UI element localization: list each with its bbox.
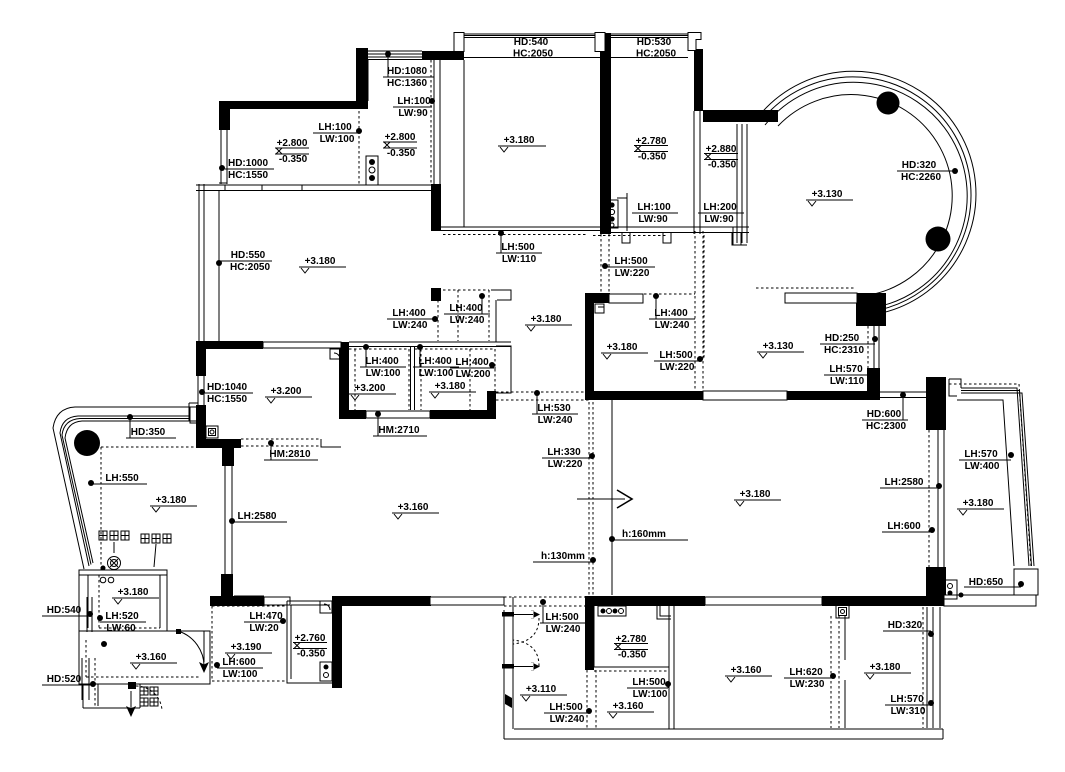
svg-text:LH:600: LH:600 (887, 521, 921, 532)
svg-text:HD:530: HD:530 (637, 37, 672, 48)
svg-text:LH:400: LH:400 (455, 357, 489, 368)
svg-text:HD:320: HD:320 (902, 160, 937, 171)
svg-text:LW:60: LW:60 (106, 623, 136, 634)
svg-text:LW:220: LW:220 (660, 362, 695, 373)
svg-text:-0.350: -0.350 (708, 160, 737, 171)
svg-text:LH:520: LH:520 (105, 611, 139, 622)
svg-text:LH:500: LH:500 (659, 350, 693, 361)
svg-text:-0.350: -0.350 (618, 650, 647, 661)
svg-text:HM:2810: HM:2810 (269, 449, 311, 460)
svg-text:LH:400: LH:400 (654, 308, 688, 319)
svg-text:LW:100: LW:100 (223, 669, 258, 680)
svg-text:HC:1550: HC:1550 (228, 170, 268, 181)
svg-text:-0.350: -0.350 (638, 152, 667, 163)
svg-text:LW:110: LW:110 (502, 254, 537, 265)
svg-text:h:160mm: h:160mm (622, 529, 666, 540)
svg-text:LW:20: LW:20 (249, 623, 279, 634)
svg-text:LH:570: LH:570 (890, 694, 924, 705)
svg-text:HD:1000: HD:1000 (228, 158, 268, 169)
svg-text:LH:400: LH:400 (392, 308, 426, 319)
svg-text:+2.800: +2.800 (385, 132, 416, 143)
svg-text:+3.130: +3.130 (763, 341, 794, 352)
svg-text:+3.160: +3.160 (136, 652, 167, 663)
svg-text:LH:570: LH:570 (829, 364, 863, 375)
svg-text:LW:230: LW:230 (790, 679, 825, 690)
svg-text:HD:320: HD:320 (888, 620, 923, 631)
svg-text:LW:240: LW:240 (450, 315, 485, 326)
svg-text:+3.180: +3.180 (740, 489, 771, 500)
svg-text:LH:500: LH:500 (632, 677, 666, 688)
svg-text:LW:90: LW:90 (704, 214, 734, 225)
svg-text:+3.180: +3.180 (531, 314, 562, 325)
svg-text:+3.200: +3.200 (271, 386, 302, 397)
svg-text:HC:2050: HC:2050 (230, 262, 270, 273)
svg-text:LW:400: LW:400 (965, 461, 1000, 472)
svg-text:HC:2310: HC:2310 (824, 345, 864, 356)
svg-text:HD:600: HD:600 (867, 409, 902, 420)
svg-text:+3.180: +3.180 (305, 256, 336, 267)
svg-text:HD:1080: HD:1080 (387, 66, 427, 77)
svg-text:LW:240: LW:240 (655, 320, 690, 331)
svg-text:-0.350: -0.350 (387, 148, 416, 159)
svg-text:LH:550: LH:550 (105, 473, 139, 484)
svg-text:HD:1040: HD:1040 (207, 382, 247, 393)
svg-text:h:130mm: h:130mm (541, 551, 585, 562)
svg-text:HC:2300: HC:2300 (866, 421, 906, 432)
svg-text:+2.800: +2.800 (277, 138, 308, 149)
svg-text:LH:500: LH:500 (545, 612, 579, 623)
svg-text:LH:570: LH:570 (964, 449, 998, 460)
svg-text:LW:90: LW:90 (398, 108, 428, 119)
svg-text:LW:240: LW:240 (550, 714, 585, 725)
svg-text:HD:540: HD:540 (514, 37, 549, 48)
svg-text:+3.180: +3.180 (156, 495, 187, 506)
svg-text:HD:250: HD:250 (825, 333, 860, 344)
svg-text:LW:200: LW:200 (456, 369, 491, 380)
svg-text:LH:530: LH:530 (537, 403, 571, 414)
svg-text:LH:200: LH:200 (703, 202, 737, 213)
svg-text:HD:540: HD:540 (47, 605, 82, 616)
svg-text:+3.130: +3.130 (812, 189, 843, 200)
svg-text:LW:240: LW:240 (546, 624, 581, 635)
svg-text:LH:400: LH:400 (365, 356, 399, 367)
svg-text:+3.180: +3.180 (870, 662, 901, 673)
svg-text:LH:2580: LH:2580 (238, 511, 277, 522)
svg-text:+3.180: +3.180 (435, 381, 466, 392)
svg-text:LW:240: LW:240 (393, 320, 428, 331)
svg-text:+3.200: +3.200 (355, 383, 386, 394)
svg-text:LH:500: LH:500 (501, 242, 535, 253)
svg-text:LH:100: LH:100 (318, 122, 352, 133)
svg-text:LW:90: LW:90 (638, 214, 668, 225)
svg-text:LH:2580: LH:2580 (885, 477, 924, 488)
svg-text:LW:110: LW:110 (830, 376, 865, 387)
svg-text:LW:100: LW:100 (320, 134, 355, 145)
svg-text:+3.180: +3.180 (963, 498, 994, 509)
svg-text:+3.190: +3.190 (231, 642, 262, 653)
svg-text:LH:100: LH:100 (637, 202, 671, 213)
svg-text:HD:550: HD:550 (231, 250, 266, 261)
svg-text:HM:2710: HM:2710 (378, 425, 420, 436)
svg-text:+3.160: +3.160 (731, 665, 762, 676)
svg-text:+3.180: +3.180 (504, 135, 535, 146)
svg-text:LW:100: LW:100 (419, 368, 454, 379)
svg-text:HD:650: HD:650 (969, 577, 1004, 588)
svg-text:LW:220: LW:220 (548, 459, 583, 470)
svg-text:HC:1360: HC:1360 (387, 78, 427, 89)
svg-text:LH:500: LH:500 (549, 702, 583, 713)
svg-text:HC:2050: HC:2050 (513, 49, 553, 60)
svg-text:HC:2050: HC:2050 (636, 49, 676, 60)
svg-text:+3.180: +3.180 (118, 587, 149, 598)
svg-text:-0.350: -0.350 (297, 649, 326, 660)
svg-text:LW:100: LW:100 (633, 689, 668, 700)
svg-text:+3.160: +3.160 (398, 502, 429, 513)
svg-text:HC:2260: HC:2260 (901, 172, 941, 183)
svg-text:LW:100: LW:100 (366, 368, 401, 379)
svg-text:LH:100: LH:100 (397, 96, 431, 107)
svg-text:LW:310: LW:310 (891, 706, 926, 717)
svg-text:-0.350: -0.350 (279, 154, 308, 165)
svg-text:LW:220: LW:220 (615, 268, 650, 279)
svg-text:HD:350: HD:350 (131, 427, 166, 438)
svg-text:HD:520: HD:520 (47, 674, 82, 685)
svg-text:LH:470: LH:470 (249, 611, 283, 622)
svg-text:LH:400: LH:400 (449, 303, 483, 314)
svg-text:LH:620: LH:620 (789, 667, 823, 678)
svg-text:LH:600: LH:600 (222, 657, 256, 668)
svg-text:LH:330: LH:330 (547, 447, 581, 458)
svg-text:LH:400: LH:400 (418, 356, 452, 367)
svg-text:HC:1550: HC:1550 (207, 394, 247, 405)
svg-text:+3.110: +3.110 (526, 684, 557, 695)
svg-text:+3.160: +3.160 (613, 701, 644, 712)
svg-text:LH:500: LH:500 (614, 256, 648, 267)
svg-text:+3.180: +3.180 (607, 342, 638, 353)
svg-text:LW:240: LW:240 (538, 415, 573, 426)
